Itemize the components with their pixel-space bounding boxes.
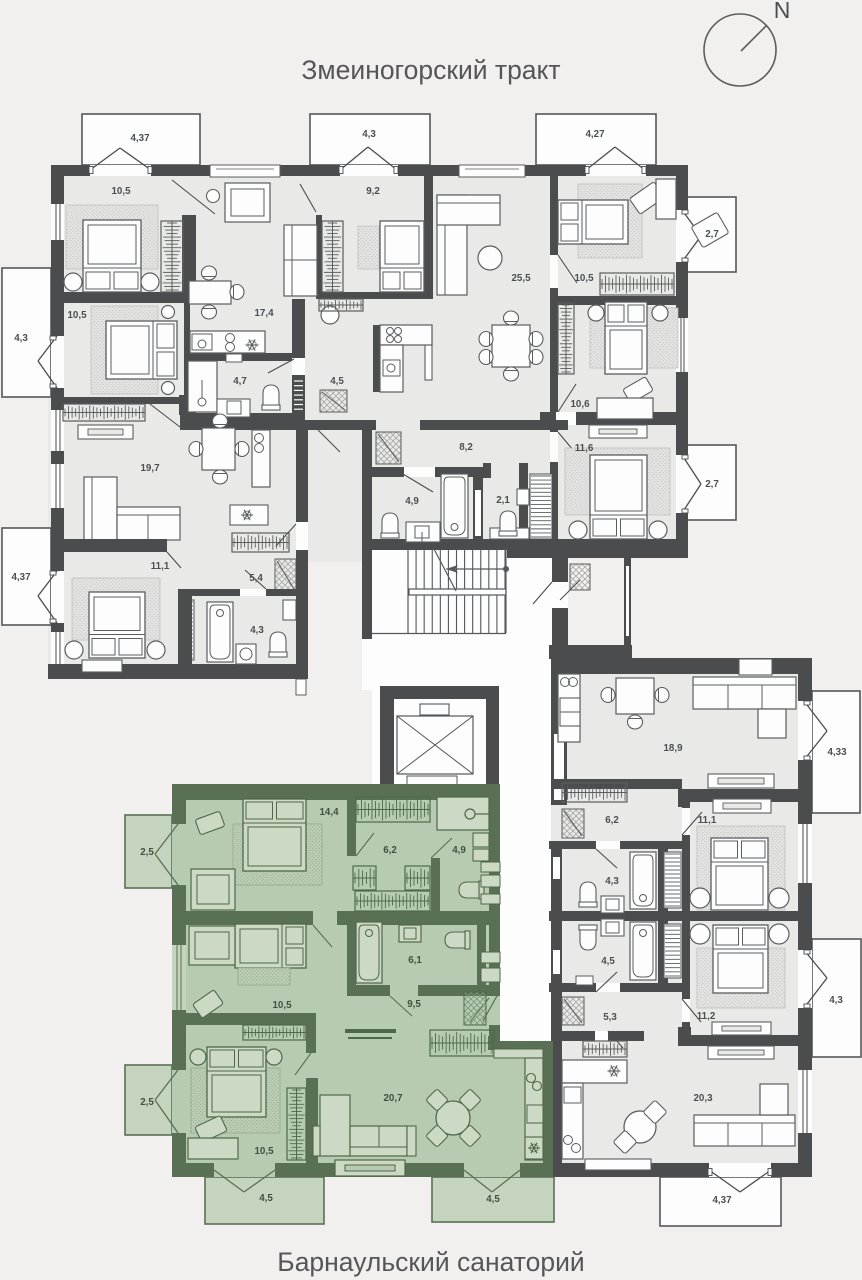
svg-text:2,1: 2,1 <box>496 495 510 506</box>
svg-text:4,5: 4,5 <box>601 956 615 967</box>
svg-text:6,2: 6,2 <box>383 845 397 856</box>
svg-text:10,5: 10,5 <box>111 186 131 197</box>
svg-text:4,9: 4,9 <box>452 845 466 856</box>
svg-text:9,5: 9,5 <box>407 999 421 1010</box>
svg-text:9,2: 9,2 <box>366 186 380 197</box>
svg-text:4,9: 4,9 <box>405 496 419 507</box>
svg-text:4,3: 4,3 <box>14 333 28 344</box>
svg-text:20,7: 20,7 <box>383 1093 403 1104</box>
svg-text:N: N <box>774 0 791 23</box>
svg-text:Змеиногорский тракт: Змеиногорский тракт <box>301 55 560 85</box>
svg-text:4,7: 4,7 <box>233 376 247 387</box>
svg-text:4,37: 4,37 <box>11 572 31 583</box>
svg-text:4,3: 4,3 <box>829 995 843 1006</box>
svg-text:4,3: 4,3 <box>250 625 264 636</box>
svg-text:4,3: 4,3 <box>362 129 376 140</box>
svg-text:25,5: 25,5 <box>511 273 531 284</box>
svg-text:4,27: 4,27 <box>585 129 605 140</box>
svg-text:19,7: 19,7 <box>140 463 160 474</box>
svg-text:4,37: 4,37 <box>712 1195 732 1206</box>
svg-text:10,5: 10,5 <box>254 1146 274 1157</box>
svg-text:10,5: 10,5 <box>272 1000 292 1011</box>
svg-text:Барнаульский санаторий: Барнаульский санаторий <box>277 1247 584 1277</box>
svg-text:17,4: 17,4 <box>254 308 274 319</box>
svg-text:11,2: 11,2 <box>697 1011 716 1022</box>
svg-text:4,3: 4,3 <box>605 876 619 887</box>
svg-text:10,6: 10,6 <box>570 399 590 410</box>
svg-text:14,4: 14,4 <box>319 807 339 818</box>
svg-text:2,7: 2,7 <box>705 229 719 240</box>
svg-text:2,7: 2,7 <box>705 479 719 490</box>
svg-text:6,1: 6,1 <box>408 955 422 966</box>
svg-text:20,3: 20,3 <box>693 1093 713 1104</box>
svg-text:4,33: 4,33 <box>827 747 847 758</box>
svg-text:18,9: 18,9 <box>663 743 683 754</box>
svg-text:2,5: 2,5 <box>140 1097 154 1108</box>
svg-text:11,1: 11,1 <box>698 815 717 826</box>
svg-text:2,5: 2,5 <box>140 847 154 858</box>
svg-text:5,4: 5,4 <box>249 573 263 584</box>
svg-text:10,5: 10,5 <box>574 273 594 284</box>
svg-text:11,6: 11,6 <box>575 443 594 454</box>
svg-text:8,2: 8,2 <box>459 442 473 453</box>
svg-text:11,1: 11,1 <box>151 561 170 572</box>
svg-text:4,37: 4,37 <box>130 133 150 144</box>
svg-text:4,5: 4,5 <box>259 1193 273 1204</box>
svg-text:4,5: 4,5 <box>486 1194 500 1205</box>
svg-text:10,5: 10,5 <box>67 310 87 321</box>
svg-text:5,3: 5,3 <box>603 1012 617 1023</box>
svg-text:6,2: 6,2 <box>605 815 619 826</box>
svg-text:4,5: 4,5 <box>330 376 344 387</box>
